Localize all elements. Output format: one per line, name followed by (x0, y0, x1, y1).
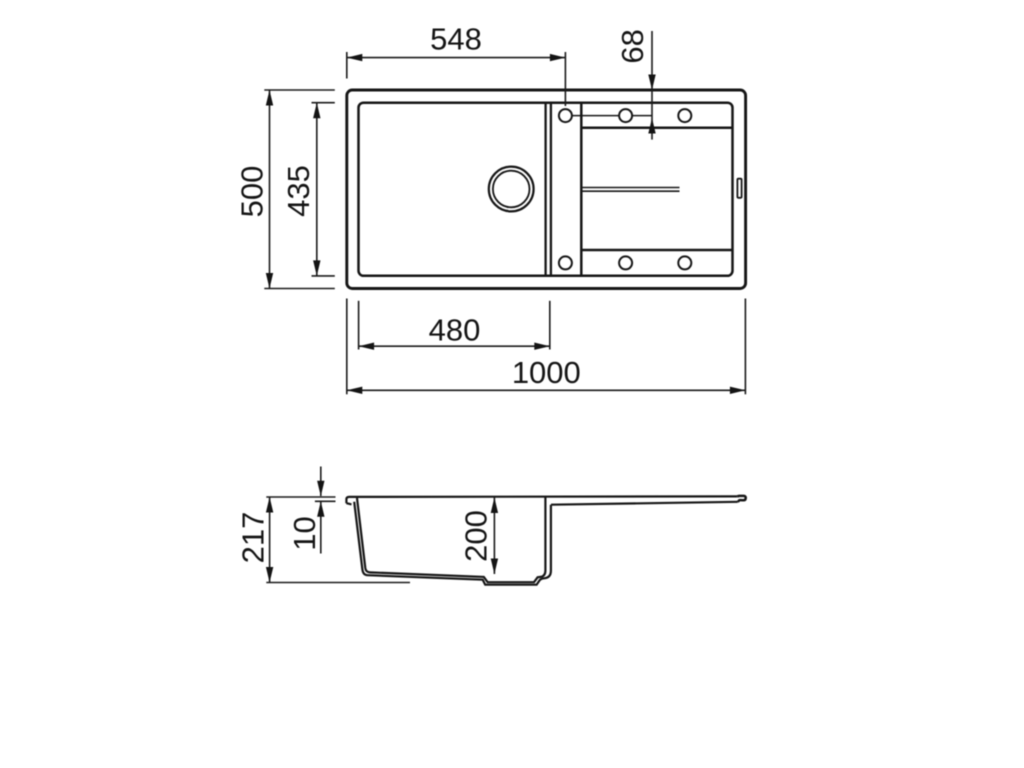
svg-text:68: 68 (615, 29, 650, 63)
svg-text:217: 217 (236, 512, 271, 564)
svg-text:1000: 1000 (512, 355, 581, 390)
svg-text:200: 200 (458, 510, 493, 562)
svg-text:435: 435 (281, 165, 316, 217)
svg-text:500: 500 (235, 166, 270, 218)
svg-text:548: 548 (430, 22, 482, 57)
svg-text:480: 480 (429, 313, 481, 348)
svg-text:10: 10 (287, 516, 322, 550)
